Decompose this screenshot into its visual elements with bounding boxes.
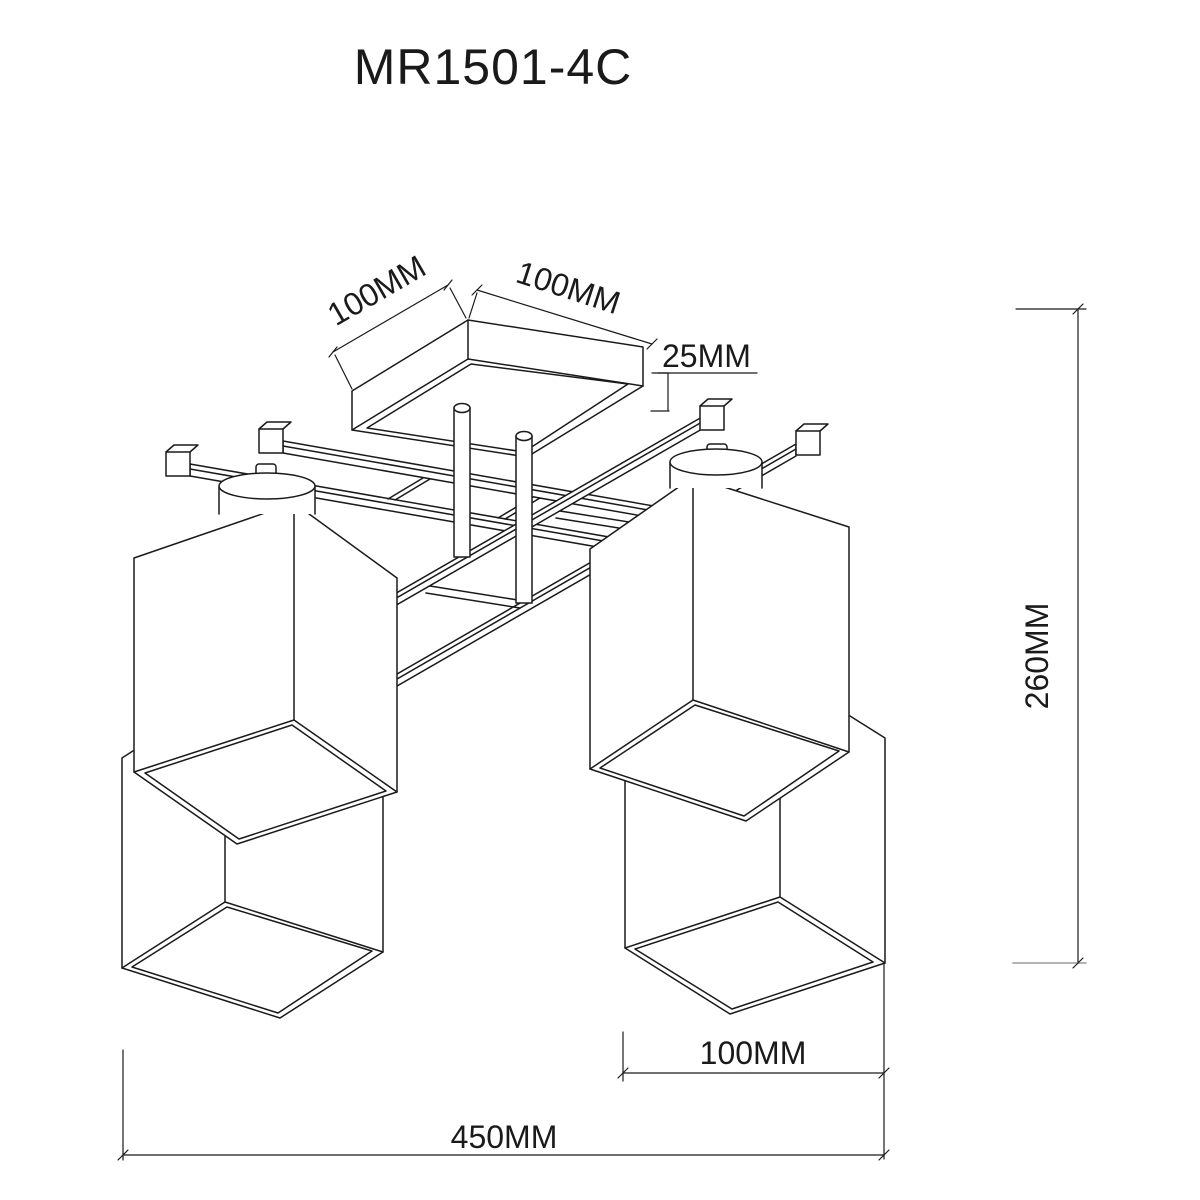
- technical-drawing-page: MR1501-4C: [0, 0, 1200, 1200]
- arm-end-cube: [700, 399, 732, 430]
- fixture-technical-drawing: MR1501-4C: [0, 0, 1200, 1200]
- dimension-label-shade-width: 100MM: [700, 1035, 807, 1071]
- dimension-overall-height: 260MM: [1013, 304, 1086, 968]
- shade-upper-right: [590, 477, 849, 821]
- dimension-canopy-height: 25MM: [651, 338, 757, 411]
- arm-end-cube: [796, 424, 828, 455]
- dimension-label-canopy-right: 100MM: [512, 254, 625, 321]
- ceiling-canopy: [352, 320, 643, 457]
- dimension-label-canopy-left: 100MM: [321, 248, 431, 333]
- dimension-label-overall-height: 260MM: [1019, 603, 1055, 710]
- lamp-holder-right: [670, 444, 762, 488]
- product-code-title: MR1501-4C: [354, 39, 633, 95]
- dimension-label-overall-width: 450MM: [451, 1119, 558, 1155]
- shade-upper-left: [134, 503, 397, 844]
- dimension-label-canopy-height: 25MM: [662, 338, 751, 374]
